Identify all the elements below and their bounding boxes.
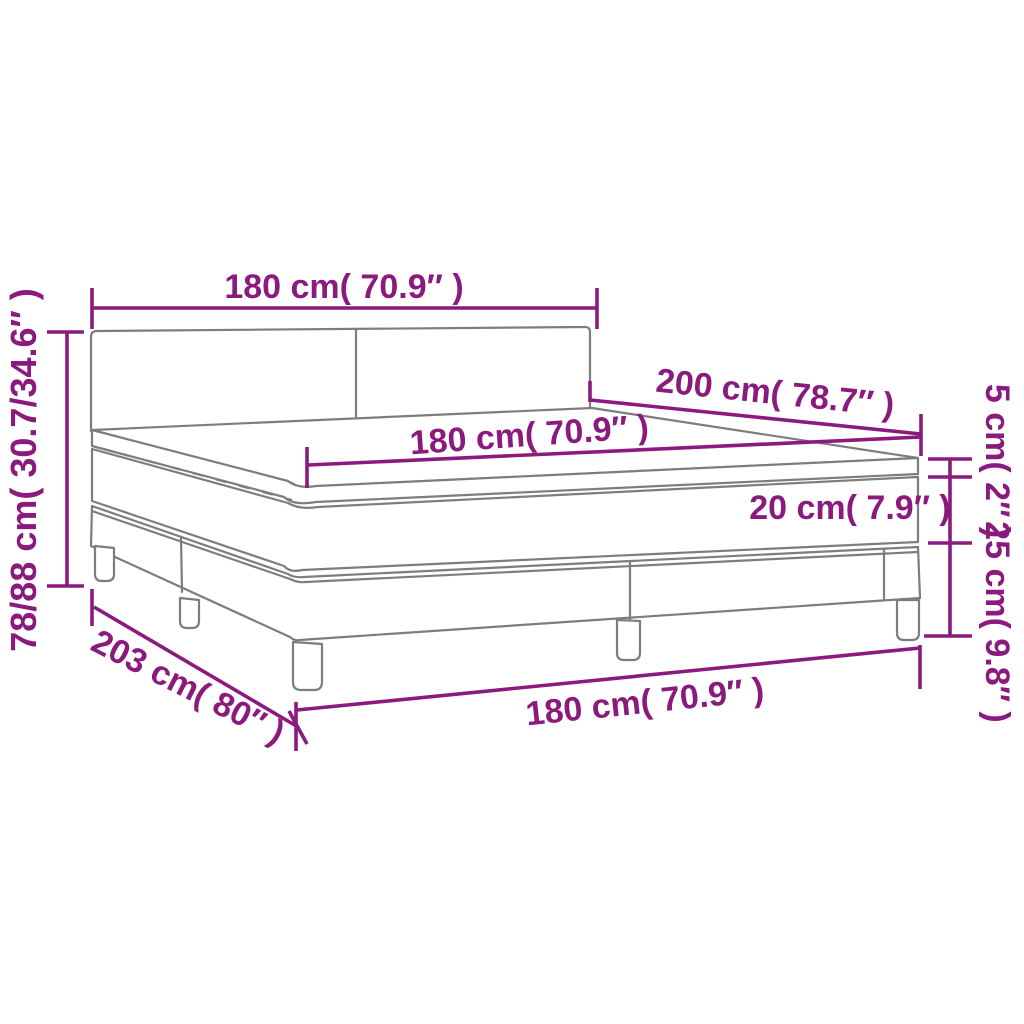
bed-dimension-drawing: 180 cm( 70.9″ ) 78/88 cm( 30.7/34.6″ ) 2… xyxy=(0,0,1024,1024)
dim-label-base-height: 25 cm( 9.8″ ) xyxy=(978,521,1016,723)
bed-leg xyxy=(95,546,114,581)
bed-leg xyxy=(617,620,640,660)
dim-tick xyxy=(289,711,307,744)
dim-label-base-width: 180 cm( 70.9″ ) xyxy=(524,671,766,734)
dim-label-overall-height: 78/88 cm( 30.7/34.6″ ) xyxy=(3,288,44,651)
dim-label-mattress-length: 200 cm( 78.7″ ) xyxy=(654,362,896,425)
dim-label-mattress-height: 20 cm( 7.9″ ) xyxy=(749,489,951,527)
dim-height-stack xyxy=(924,459,972,636)
dim-overall-height xyxy=(47,332,84,586)
base-seam-left xyxy=(181,537,182,592)
dim-label-overall-length: 203 cm( 80″ ) xyxy=(85,622,290,752)
dim-label-topper-height: 5 cm( 2″ ) xyxy=(978,384,1016,538)
bed-leg xyxy=(293,642,322,690)
bed-leg xyxy=(897,600,919,640)
bed-leg xyxy=(180,598,199,628)
dim-label-headboard-width: 180 cm( 70.9″ ) xyxy=(224,268,463,306)
dimension-diagram: 180 cm( 70.9″ ) 78/88 cm( 30.7/34.6″ ) 2… xyxy=(0,0,1024,1024)
